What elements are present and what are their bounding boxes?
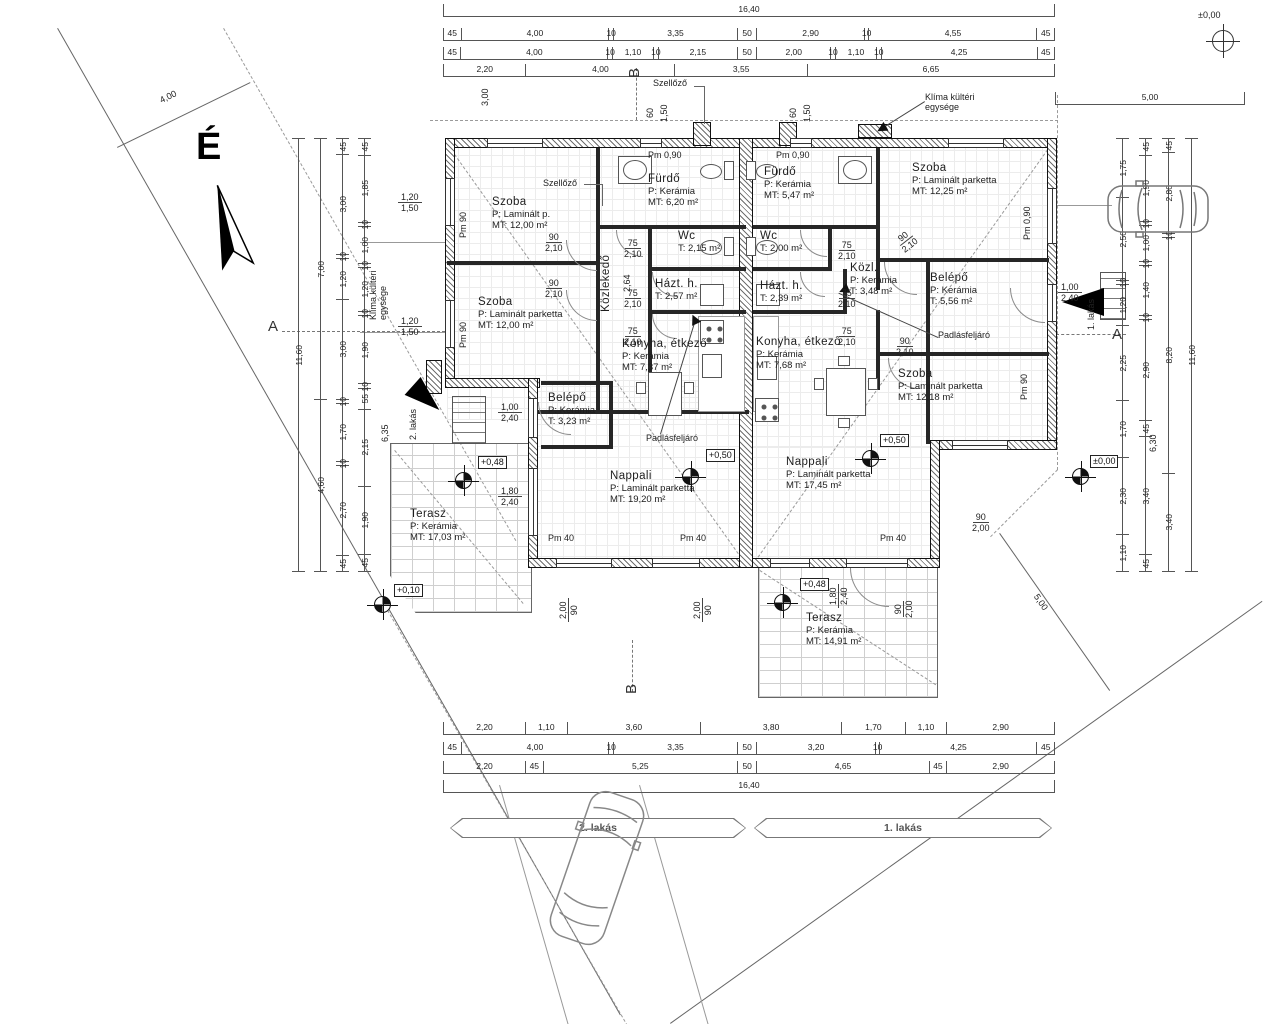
room-label: Terasz P: Kerámia MT: 14,91 m²	[806, 612, 861, 647]
dim-segment: 45	[336, 138, 349, 154]
annotation-text: 60	[645, 108, 655, 118]
opening-width: 90	[973, 512, 989, 523]
dim-segment: 1,40	[1139, 265, 1152, 314]
dim-chain-bottom-3: 2,20455,25504,65452,90	[443, 761, 1055, 774]
level-marker: +0,48	[478, 456, 507, 469]
annotation-text: Padlásfeljáró	[938, 330, 990, 340]
room-label: Fürdő P: Kerámia MT: 6,20 m²	[648, 173, 698, 208]
annotation-text: Pm 0,90	[776, 150, 810, 160]
opening-height: 2,10	[896, 347, 914, 357]
dim-segment: 1,10	[835, 47, 876, 60]
room-area: MT: 19,20 m²	[610, 494, 695, 505]
dim-segment: 3,00	[336, 154, 349, 254]
window	[790, 138, 812, 148]
opening-dim: 90 2,00	[893, 600, 914, 618]
opening-height: 2,10	[545, 289, 563, 299]
dim-segment: 45	[1036, 742, 1055, 755]
room-area: MT: 14,91 m²	[806, 636, 861, 647]
room-area: MT: 6,20 m²	[648, 197, 698, 208]
ac-leader-line	[880, 101, 925, 130]
dim-chain-top-total: 16,40	[443, 4, 1055, 17]
room-name: Wc	[760, 230, 802, 242]
annotation-text: Padlásfeljáró	[646, 433, 698, 443]
room-label: Belépő P: Kerámia T: 3,23 m²	[548, 392, 595, 427]
dim-segment: 2,15	[358, 409, 371, 486]
leader-line	[704, 86, 705, 124]
annotation-text: 60	[788, 108, 798, 118]
annotation-text: A	[1112, 326, 1122, 343]
room-area: MT: 12,00 m²	[492, 220, 550, 231]
chair	[814, 378, 824, 390]
opening-dim: 90 2,10	[545, 232, 563, 253]
room-label: Terasz P: Kerámia MT: 17,03 m²	[410, 508, 465, 543]
room-name: Házt. h.	[655, 278, 698, 290]
room-name: Házt. h.	[760, 280, 803, 292]
opening-dim: 75 2,10	[624, 326, 642, 347]
opening-dim: 1,00 2,40	[498, 402, 522, 423]
opening-width: 1,00	[498, 402, 522, 413]
dim-segment: 2,90	[1139, 319, 1152, 420]
dim-segment: 45	[358, 138, 371, 155]
opening-height: 1,50	[401, 327, 419, 337]
room-name: Terasz	[806, 612, 861, 624]
partition	[596, 225, 746, 229]
dim-segment: 45	[358, 554, 371, 572]
dim-segment: 1,10	[525, 722, 567, 735]
dim-segment: 5,25	[543, 761, 737, 774]
room-label: Belépő P: Kerámia T: 5,56 m²	[930, 272, 977, 307]
envelope-dashed-corner	[990, 469, 1058, 537]
dim-segment: 5,00	[1055, 92, 1245, 105]
dim-segment: 45	[1139, 138, 1152, 155]
dim-segment: 4,60	[314, 399, 327, 572]
room-label: Közlekedő	[600, 255, 613, 312]
room-floor-finish: P: Laminált p.	[492, 209, 550, 220]
annotation-text: Pm 40	[880, 533, 906, 543]
room-floor-finish: P: Laminált parketta	[786, 469, 871, 480]
opening-width: 2,00	[692, 598, 703, 622]
annotation-text: Klíma kültéri egysége	[925, 92, 1005, 112]
annotation-text: 1,50	[802, 104, 812, 122]
room-name: Szoba	[492, 196, 550, 208]
toilet-tank	[724, 161, 734, 180]
partition	[753, 225, 880, 229]
dim-segment: 1,70	[1116, 400, 1129, 457]
dim-chain-left-2: 453,00101,203,00101,70102,7045	[336, 138, 349, 572]
room-floor-finish: T: 2,57 m²	[655, 291, 698, 302]
toilet-tank	[746, 237, 756, 256]
dim-chain-bottom-2: 454,00103,35503,20104,2545	[443, 742, 1055, 755]
dim-segment: 4,55	[868, 28, 1036, 41]
opening-dim: 1,20 1,50	[398, 192, 422, 213]
room-area: MT: 7,68 m²	[756, 360, 841, 371]
room-name: Terasz	[410, 508, 465, 520]
opening-height: 2,10	[838, 337, 856, 347]
dim-segment: 1,70	[841, 722, 905, 735]
opening-height: 2,40	[839, 587, 849, 605]
opening-dim: 2,00 90	[558, 598, 579, 622]
opening-dim: 1,80 2,40	[498, 486, 522, 507]
window	[952, 440, 1008, 450]
annotation-text: ±0,00	[1198, 10, 1220, 20]
car-top-view-icon	[1106, 183, 1210, 235]
opening-width: 1,80	[828, 584, 839, 608]
partition	[447, 261, 596, 265]
partition	[609, 381, 613, 449]
room-floor-finish: P: Kerámia	[548, 405, 595, 416]
boundary-dim-line	[117, 82, 250, 148]
room-floor-finish: T: 2,00 m²	[760, 243, 802, 254]
opening-height: 2,40	[501, 413, 519, 423]
annotation-text: 6,30	[1148, 434, 1158, 452]
room-label: Szoba P: Laminált parketta MT: 12,18 m²	[898, 368, 983, 403]
partition	[541, 445, 613, 449]
dim-segment: 10	[336, 399, 349, 403]
dim-segment: 4,25	[879, 742, 1036, 755]
survey-marker-icon	[455, 472, 472, 489]
annotation-text: Szellőző	[653, 78, 687, 88]
opening-width: 1,20	[398, 192, 422, 203]
dim-segment: 45	[443, 742, 461, 755]
annotation-text: Pm 40	[548, 533, 574, 543]
room-floor-finish: T: 2,39 m²	[760, 293, 803, 304]
annotation-text: Szellőző	[543, 178, 577, 188]
dim-segment: 50	[737, 47, 756, 60]
room-label: Wc T: 2,00 m²	[760, 230, 802, 254]
room-name: Fürdő	[764, 166, 814, 178]
dim-segment: 50	[737, 28, 756, 41]
annotation-text: Pm 40	[680, 533, 706, 543]
opening-dim: 1,20 1,50	[398, 316, 422, 337]
room-floor-finish: P: Laminált parketta	[610, 483, 695, 494]
annotation-text: Pm 90	[458, 322, 468, 348]
level-marker: ±0,00	[1090, 455, 1118, 468]
dim-chain-left-1: 7,004,60	[314, 138, 327, 572]
dim-chain-bottom-1: 2,201,103,603,801,701,102,90	[443, 722, 1055, 735]
annotation-text: 5,00	[1032, 592, 1050, 612]
dim-segment: 3,20	[756, 742, 874, 755]
dim-segment: 2,20	[443, 761, 525, 774]
opening-dim: 1,80 2,40	[828, 584, 849, 608]
dim-segment: 4,00	[461, 742, 609, 755]
dim-segment: 45	[336, 555, 349, 572]
dim-segment: 2,20	[443, 722, 525, 735]
opening-height: 2,10	[838, 251, 856, 261]
dim-segment: 2,90	[756, 28, 863, 41]
survey-marker-icon	[862, 450, 879, 467]
opening-dim: 90 2,10	[896, 336, 914, 357]
opening-dim: 1,00 2,40	[1058, 282, 1082, 303]
opening-dim: 2,00 90	[692, 598, 713, 622]
annotation-text: 1,50	[659, 104, 669, 122]
survey-marker-icon	[682, 468, 699, 485]
dim-segment: 3,55	[674, 64, 806, 77]
room-label: Wc T: 2,15 m²	[678, 230, 720, 254]
floor-plan-canvas: 16,40 454,00103,35502,90104,5545 454,001…	[0, 0, 1272, 1024]
window	[640, 138, 662, 148]
washbasin-bowl	[843, 160, 867, 180]
room-label: Szoba P: Laminált parketta MT: 12,25 m²	[912, 162, 997, 197]
toilet	[700, 164, 722, 179]
window	[652, 558, 700, 568]
dim-segment: 45	[1139, 554, 1152, 572]
partition	[753, 267, 832, 271]
dim-segment: 2,15	[658, 47, 737, 60]
survey-marker-icon	[774, 594, 791, 611]
room-area: T: 3,48 m²	[850, 286, 897, 297]
room-area: MT: 17,03 m²	[410, 532, 465, 543]
opening-width: 90	[546, 232, 562, 243]
room-name: Szoba	[912, 162, 997, 174]
leader-line	[584, 184, 603, 185]
dim-chain-top-3: 2,204,003,556,65	[443, 64, 1055, 77]
annotation-text: Pm 90	[458, 212, 468, 238]
partition	[828, 227, 832, 271]
opening-height: 2,10	[624, 249, 642, 259]
opening-width: 1,20	[398, 316, 422, 327]
opening-width: 1,80	[498, 486, 522, 497]
annotation-text: B	[626, 68, 643, 78]
room-label: Házt. h. T: 2,39 m²	[760, 280, 803, 304]
opening-height: 2,00	[972, 523, 990, 533]
room-name: Szoba	[898, 368, 983, 380]
north-arrow-icon	[196, 178, 261, 278]
survey-marker-icon	[374, 596, 391, 613]
dim-segment: 1,10	[1116, 534, 1129, 572]
dim-segment: 4,65	[756, 761, 928, 774]
dim-segment: 1,10	[612, 47, 653, 60]
entry-door-unit2	[528, 398, 538, 438]
dim-segment: 45	[443, 28, 461, 41]
opening-height: 2,10	[838, 299, 856, 309]
opening-width: 75	[839, 326, 855, 337]
room-floor-finish: P: Kerámia	[756, 349, 841, 360]
annotation-text: Pm 0,90	[648, 150, 682, 160]
dim-segment: 45	[1036, 28, 1055, 41]
dim-segment: 2,90	[946, 722, 1055, 735]
window	[1047, 188, 1057, 244]
dim-segment: 7,00	[314, 138, 327, 399]
dim-segment: 16,40	[443, 780, 1055, 793]
dim-segment: 1,20	[336, 258, 349, 299]
dim-segment: 8,20	[1162, 237, 1175, 473]
diagonal-dim-line	[999, 533, 1110, 691]
dim-chain-left-total: 11,60	[292, 138, 305, 572]
opening-width: 1,00	[1058, 282, 1082, 293]
annotation-text: 2. lakás	[408, 409, 418, 440]
opening-dim: 75 2,10	[838, 288, 856, 309]
dim-segment: 16,40	[443, 4, 1055, 17]
room-label: Közl. P: Kerámia T: 3,48 m²	[850, 262, 897, 297]
annotation-text: 1. lakás	[1086, 299, 1096, 330]
room-floor-finish: P: Kerámia	[648, 186, 698, 197]
opening-width: 75	[625, 326, 641, 337]
room-floor-finish: P: Kerámia	[622, 351, 707, 362]
partition	[541, 381, 613, 385]
dim-segment: 10	[336, 254, 349, 258]
opening-height: 90	[703, 605, 713, 615]
envelope-dashed-top	[430, 120, 1058, 121]
entry-door-unit1	[1047, 284, 1057, 322]
room-name: Közlekedő	[600, 255, 612, 312]
room-area: MT: 17,45 m²	[786, 480, 871, 491]
opening-dim: 75 2,10	[624, 238, 642, 259]
washing-machine	[700, 284, 724, 306]
dim-segment: 3,35	[613, 28, 737, 41]
vent-shaft	[693, 122, 711, 146]
opening-dim: 75 2,10	[838, 240, 856, 261]
dim-segment: 10	[336, 461, 349, 465]
datum-circle-icon	[1212, 30, 1234, 52]
survey-marker-icon	[1072, 468, 1089, 485]
opening-height: 2,00	[904, 600, 914, 618]
annotation-text: Pm 90	[1019, 374, 1029, 400]
unit-banner-label: 1. lakás	[755, 819, 1051, 837]
car-top-view-icon	[542, 784, 651, 952]
opening-width: 90	[893, 601, 904, 617]
opening-height: 2,10	[545, 243, 563, 253]
opening-width: 75	[839, 288, 855, 299]
annotation-text: A	[268, 318, 278, 335]
room-label: Házt. h. T: 2,57 m²	[655, 278, 698, 302]
room-label: Nappali P: Laminált parketta MT: 17,45 m…	[786, 456, 871, 491]
stove	[755, 398, 779, 422]
dim-segment: 2,30	[1116, 457, 1129, 534]
dim-segment: 45	[443, 47, 460, 60]
room-area: MT: 5,47 m²	[764, 190, 814, 201]
chair	[636, 382, 646, 394]
dim-segment: 1,90	[358, 315, 371, 383]
window	[556, 558, 612, 568]
terrace-door-unit1	[846, 558, 908, 568]
axis-line	[360, 242, 447, 243]
room-label: Szoba P: Laminált parketta MT: 12,00 m²	[478, 296, 563, 331]
dim-segment: 50	[737, 742, 756, 755]
window	[445, 300, 455, 348]
room-name: Fürdő	[648, 173, 698, 185]
room-floor-finish: P: Kerámia	[806, 625, 861, 636]
dim-segment: 6,65	[807, 64, 1055, 77]
leader-line	[694, 86, 705, 87]
room-name: Belépő	[548, 392, 595, 404]
dining-table	[826, 368, 866, 416]
opening-height: 90	[569, 605, 579, 615]
toilet-tank	[746, 161, 756, 180]
annotation-text: B	[623, 684, 640, 694]
window	[948, 138, 1004, 148]
dim-segment: 2,70	[336, 465, 349, 555]
opening-height: 2,10	[624, 337, 642, 347]
chair	[868, 378, 878, 390]
room-label: Konyha, étkező P: Kerámia MT: 7,68 m²	[756, 336, 841, 371]
room-name: Konyha, étkező	[756, 336, 841, 348]
terrace-door-unit2	[528, 468, 538, 536]
opening-dim: 75 2,10	[838, 326, 856, 347]
room-floor-finish: P: Kerámia	[410, 521, 465, 532]
dim-segment: 2,90	[946, 761, 1055, 774]
dim-segment: 2,20	[443, 64, 525, 77]
wall	[445, 378, 540, 388]
dim-segment: 50	[737, 761, 756, 774]
room-name: Wc	[678, 230, 720, 242]
wall	[930, 440, 940, 568]
dim-segment: 3,40	[1162, 473, 1175, 572]
dim-segment: 3,60	[567, 722, 701, 735]
dim-segment: 3,35	[613, 742, 737, 755]
dim-segment: 4,00	[460, 47, 607, 60]
dim-segment: 4,00	[525, 64, 674, 77]
dim-segment: 10	[1139, 261, 1152, 265]
opening-height: 2,40	[501, 497, 519, 507]
room-name: Közl.	[850, 262, 897, 274]
room-name: Belépő	[930, 272, 977, 284]
room-label: Fürdő P: Kerámia MT: 5,47 m²	[764, 166, 814, 201]
level-marker: +0,50	[880, 434, 909, 447]
room-area: MT: 7,37 m²	[622, 362, 707, 373]
room-floor-finish: T: 2,15 m²	[678, 243, 720, 254]
opening-width: 75	[625, 288, 641, 299]
dim-segment: 45	[525, 761, 543, 774]
opening-height: 1,50	[401, 203, 419, 213]
window	[487, 138, 543, 148]
room-area: T: 3,23 m²	[548, 416, 595, 427]
chair	[838, 418, 850, 428]
opening-height: 2,10	[624, 299, 642, 309]
room-floor-finish: P: Kerámia	[850, 275, 897, 286]
level-marker: +0,48	[800, 578, 829, 591]
level-marker: +0,10	[394, 584, 423, 597]
annotation-text: 6,35	[380, 424, 390, 442]
room-floor-finish: P: Laminált parketta	[898, 381, 983, 392]
opening-height: 2,40	[1061, 293, 1079, 303]
dim-segment: 1,90	[358, 486, 371, 554]
annotation-text: Klíma kültéri egysége	[368, 250, 388, 320]
dim-segment: 2,00	[756, 47, 830, 60]
annotation-text: Pm 0,90	[1022, 206, 1032, 240]
dim-segment: 1,20	[1116, 284, 1129, 325]
room-floor-finish: P: Kerámia	[930, 285, 977, 296]
opening-dim: 90 2,00	[972, 512, 990, 533]
partition	[648, 267, 746, 271]
washbasin-bowl	[623, 160, 647, 180]
partition	[753, 310, 845, 314]
room-area: MT: 12,00 m²	[478, 320, 563, 331]
dim-chain-top-1: 454,00103,35502,90104,5545	[443, 28, 1055, 41]
room-floor-finish: P: Kerámia	[764, 179, 814, 190]
dim-segment: 10	[1116, 280, 1129, 284]
opening-width: 2,00	[558, 598, 569, 622]
annotation-text: 4,00	[158, 88, 178, 105]
dim-segment: 10	[1139, 315, 1152, 319]
room-label: Szoba P: Laminált p. MT: 12,00 m²	[492, 196, 550, 231]
dim-chain-top-right: 5,00	[1055, 92, 1245, 105]
leader-line	[602, 184, 603, 206]
opening-width: 75	[625, 238, 641, 249]
chair	[684, 382, 694, 394]
room-area: MT: 12,25 m²	[912, 186, 997, 197]
dim-segment: 10	[358, 222, 371, 227]
dim-segment: 3,80	[700, 722, 841, 735]
opening-width: 75	[839, 240, 855, 251]
dim-chain-left-3: 451,85101,00101,20101,9010552,151,9045	[358, 138, 371, 572]
entry-steps	[452, 396, 486, 444]
dim-segment: 10	[358, 383, 371, 388]
dim-segment: 45	[1037, 47, 1055, 60]
room-area: MT: 12,18 m²	[898, 392, 983, 403]
window	[445, 178, 455, 226]
opening-width: 90	[897, 336, 913, 347]
dim-segment: 3,00	[336, 299, 349, 399]
